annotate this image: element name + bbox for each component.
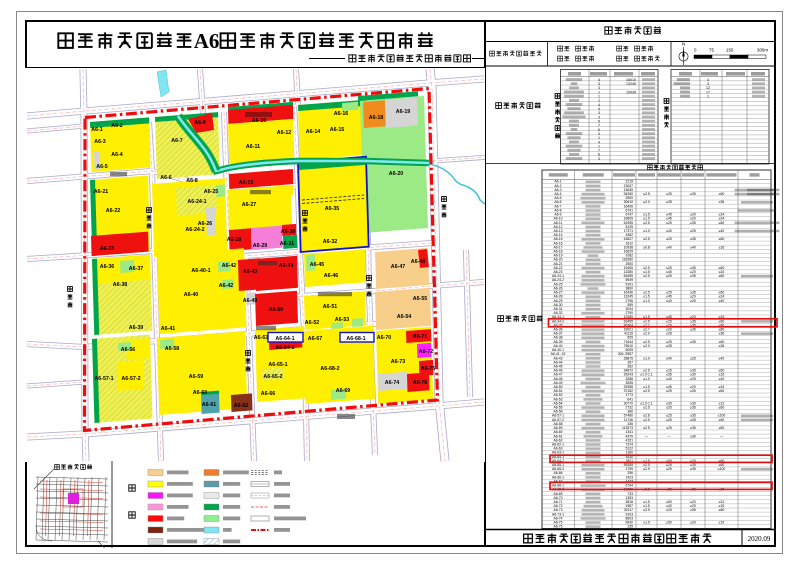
svg-text:≥35: ≥35 [690,508,696,512]
svg-text:≤40: ≤40 [666,245,672,249]
svg-text:≤25: ≤25 [666,467,672,471]
svg-text:300m: 300m [757,48,768,53]
svg-text:≤28: ≤28 [666,332,672,336]
svg-text:A6-57-2: A6-57-2 [121,376,140,382]
svg-text:A6-56: A6-56 [121,347,135,353]
svg-text:A6-32: A6-32 [323,239,337,245]
svg-text:≤25: ≤25 [666,426,672,430]
svg-text:≤60: ≤60 [719,418,725,422]
svg-text:A6-16: A6-16 [334,111,348,117]
svg-text:A6-39: A6-39 [129,325,143,331]
svg-text:≤60: ≤60 [719,192,725,196]
svg-text:A6-70: A6-70 [377,335,391,341]
svg-text:3: 3 [598,157,600,161]
svg-text:0: 0 [694,48,697,53]
svg-text:A6-36: A6-36 [100,264,114,270]
svg-text:≤25: ≤25 [666,192,672,196]
svg-text:A6-64-1: A6-64-1 [275,336,294,342]
svg-text:≤25: ≤25 [666,274,672,278]
svg-text:A6-47: A6-47 [391,264,405,270]
svg-text:≤28: ≤28 [666,200,672,204]
svg-text:≤1.0: ≤1.0 [643,377,650,381]
svg-text:≥35: ≥35 [690,426,696,430]
svg-text:≤2.5: ≤2.5 [643,192,650,196]
svg-text:A6-55: A6-55 [413,296,427,302]
svg-text:≤2.0: ≤2.0 [643,332,650,336]
svg-text:A6-61: A6-61 [202,402,216,408]
svg-text:A6: A6 [194,29,220,53]
svg-text:A6-62: A6-62 [234,403,248,409]
svg-text:—: — [645,434,649,438]
svg-text:A6-53: A6-53 [335,317,349,323]
svg-text:13245: 13245 [626,82,636,86]
svg-text:A6-10: A6-10 [252,118,266,124]
svg-text:—: — [667,434,671,438]
svg-text:A6-52: A6-52 [305,320,319,326]
svg-text:A6-19: A6-19 [396,109,410,115]
svg-text:≤2.5: ≤2.5 [643,389,650,393]
svg-text:A6-46: A6-46 [324,273,338,279]
svg-text:A6-71: A6-71 [413,334,427,340]
svg-text:A6-69: A6-69 [336,388,350,394]
svg-text:A6-9: A6-9 [194,120,206,126]
svg-text:A6-20: A6-20 [389,171,403,177]
svg-text:A6-60: A6-60 [193,390,207,396]
svg-text:2020.09: 2020.09 [748,535,771,543]
svg-text:A6-40: A6-40 [184,292,198,298]
svg-text:≤2.5: ≤2.5 [643,221,650,225]
svg-text:A6-68-1: A6-68-1 [346,336,365,342]
svg-text:A6-72: A6-72 [419,349,433,355]
svg-text:≤2.0: ≤2.0 [643,200,650,204]
svg-text:≤2.5: ≤2.5 [643,508,650,512]
svg-text:A6-1: A6-1 [91,127,103,133]
svg-text:A6-64-2: A6-64-2 [275,345,294,351]
svg-text:A6-14: A6-14 [306,129,320,135]
svg-text:≥25: ≥25 [690,229,696,233]
svg-text:A6-42: A6-42 [219,283,233,289]
svg-text:≤2.5: ≤2.5 [643,406,650,410]
svg-text:≤100: ≤100 [718,467,726,471]
svg-text:A6-7: A6-7 [171,138,183,144]
svg-text:≤60: ≤60 [719,221,725,225]
svg-text:≤1.0: ≤1.0 [643,229,650,233]
svg-text:A6-51: A6-51 [323,304,337,310]
svg-text:≤25: ≤25 [666,418,672,422]
svg-text:A6-13: A6-13 [239,180,253,186]
svg-text:≤2.5: ≤2.5 [643,418,650,422]
svg-text:A6-41: A6-41 [161,326,175,332]
svg-text:≤1.5: ≤1.5 [643,521,650,525]
svg-text:A6-76: A6-76 [553,525,562,529]
svg-text:≤2.5: ≤2.5 [643,426,650,430]
svg-text:≥35: ≥35 [690,328,696,332]
svg-text:≥25: ≥25 [690,377,696,381]
svg-text:A6-48: A6-48 [411,259,425,265]
svg-text:A6-3: A6-3 [94,139,106,145]
svg-text:A6-6: A6-6 [160,175,172,181]
svg-text:≤25: ≤25 [666,237,672,241]
svg-text:≥25: ≥25 [690,299,696,303]
svg-text:A6-22: A6-22 [106,208,120,214]
svg-text:≥35: ≥35 [690,340,696,344]
svg-text:≥35: ≥35 [690,406,696,410]
svg-text:≤0.8: ≤0.8 [643,245,650,249]
svg-text:≥35: ≥35 [690,237,696,241]
svg-text:A6-57-1: A6-57-1 [94,376,113,382]
svg-text:A6-24-1: A6-24-1 [187,199,206,205]
svg-text:≤36: ≤36 [719,344,725,348]
svg-text:A6-27: A6-27 [242,202,256,208]
svg-text:≤15: ≤15 [719,521,725,525]
svg-text:≤2.0: ≤2.0 [643,344,650,348]
svg-text:A6-50: A6-50 [269,307,283,313]
svg-text:A6-42: A6-42 [222,263,236,269]
svg-text:235: 235 [627,525,633,529]
svg-text:A6-54: A6-54 [397,314,411,320]
svg-text:A6-4: A6-4 [111,152,123,158]
svg-text:≥35: ≥35 [690,274,696,278]
svg-text:A6-5: A6-5 [96,164,108,170]
svg-text:A6-15: A6-15 [330,127,344,133]
svg-text:≤28: ≤28 [666,344,672,348]
svg-text:≥20: ≥20 [690,521,696,525]
svg-text:≤16: ≤16 [719,245,725,249]
svg-text:A6-75: A6-75 [421,366,435,372]
svg-text:A6-73: A6-73 [391,359,405,365]
svg-text:A6-26: A6-26 [198,221,212,227]
svg-text:A6-76: A6-76 [413,380,427,386]
svg-text:≤40: ≤40 [719,356,725,360]
svg-text:≤60: ≤60 [719,274,725,278]
svg-text:≥30: ≥30 [690,434,696,438]
svg-text:A6-38: A6-38 [113,282,127,288]
svg-text:≤36: ≤36 [719,332,725,336]
svg-text:≤40: ≤40 [719,299,725,303]
svg-text:A6-58: A6-58 [165,346,179,352]
svg-text:≤1.0: ≤1.0 [643,356,650,360]
svg-text:A6-31: A6-31 [280,241,294,247]
svg-text:≤36: ≤36 [719,200,725,204]
svg-text:A6-65-1: A6-65-1 [268,362,287,368]
svg-text:A6-8: A6-8 [186,178,198,184]
svg-text:A6-49: A6-49 [243,298,257,304]
svg-text:≤40: ≤40 [666,356,672,360]
svg-text:≤40: ≤40 [666,229,672,233]
svg-text:A6-18: A6-18 [369,115,383,121]
svg-text:≤60: ≤60 [719,508,725,512]
svg-text:A6-65-2: A6-65-2 [263,374,282,380]
svg-text:N: N [682,42,685,47]
svg-text:≤50: ≤50 [666,521,672,525]
svg-text:A6-28: A6-28 [227,237,241,243]
svg-text:A6-45: A6-45 [310,262,324,268]
svg-text:75: 75 [709,48,714,53]
svg-text:A6-66: A6-66 [261,391,275,397]
svg-text:≤1.0: ≤1.0 [643,299,650,303]
svg-text:A6-11: A6-11 [246,144,260,150]
svg-text:A6-59: A6-59 [189,374,203,380]
svg-text:10938: 10938 [626,90,636,94]
svg-text:≤40: ≤40 [719,377,725,381]
svg-text:A6-44: A6-44 [279,263,293,269]
svg-text:≤25: ≤25 [666,221,672,225]
svg-text:A6-2: A6-2 [111,123,123,129]
svg-text:—: — [720,434,724,438]
svg-text:≥35: ≥35 [690,221,696,225]
svg-text:150: 150 [726,48,734,53]
svg-text:≤25: ≤25 [666,406,672,410]
svg-text:A6-68-2: A6-68-2 [320,366,339,372]
svg-text:≥40: ≥40 [690,245,696,249]
svg-text:≤60: ≤60 [719,426,725,430]
svg-text:A6-30: A6-30 [281,229,295,235]
svg-text:≤2.9: ≤2.9 [643,467,650,471]
svg-text:≤60: ≤60 [719,406,725,410]
svg-text:≥35: ≥35 [690,418,696,422]
svg-text:≤60: ≤60 [719,389,725,393]
svg-text:A6-37: A6-37 [129,266,143,272]
svg-text:A6-21: A6-21 [94,189,108,195]
svg-text:≤40: ≤40 [666,299,672,303]
svg-text:1: 1 [707,95,709,99]
svg-text:≤2.5: ≤2.5 [643,237,650,241]
svg-text:≤40: ≤40 [719,229,725,233]
svg-text:≥35: ≥35 [690,389,696,393]
svg-text:A6-29: A6-29 [253,243,267,249]
svg-text:≤25: ≤25 [666,508,672,512]
svg-text:≥35: ≥35 [690,467,696,471]
svg-text:A6-25: A6-25 [204,189,218,195]
svg-text:≥25: ≥25 [690,356,696,360]
svg-text:A6-74: A6-74 [385,380,399,386]
svg-text:≤2.5: ≤2.5 [643,274,650,278]
svg-text:A6-35: A6-35 [325,206,339,212]
svg-text:A6-67: A6-67 [308,336,322,342]
svg-text:A6-43: A6-43 [243,269,257,275]
svg-text:≤40: ≤40 [666,377,672,381]
svg-text:A6-40-1: A6-40-1 [191,268,210,274]
svg-text:A6-23: A6-23 [100,246,114,252]
svg-text:≤25: ≤25 [666,389,672,393]
svg-text:≤60: ≤60 [719,237,725,241]
svg-text:A6-24-2: A6-24-2 [185,227,204,233]
svg-text:≥35: ≥35 [690,192,696,196]
svg-text:A6-63: A6-63 [254,335,268,341]
svg-text:A6-12: A6-12 [277,130,291,136]
